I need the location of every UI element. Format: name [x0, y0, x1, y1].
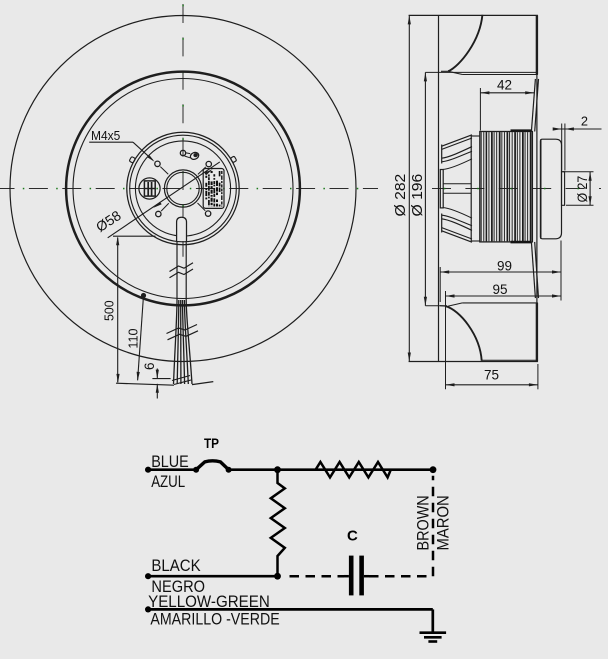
svg-text:2: 2 [581, 114, 588, 129]
svg-text:500: 500 [102, 300, 117, 321]
svg-text:110: 110 [126, 328, 141, 348]
svg-text:C: C [347, 527, 358, 544]
svg-text:99: 99 [497, 258, 512, 273]
svg-text:6: 6 [142, 362, 157, 370]
svg-text:BLACK: BLACK [151, 556, 201, 575]
svg-text:42: 42 [497, 77, 512, 92]
svg-text:MARON: MARON [434, 495, 453, 550]
svg-text:BROWN: BROWN [414, 495, 433, 550]
svg-text:YELLOW-GREEN: YELLOW-GREEN [148, 592, 270, 611]
svg-text:Ø 196: Ø 196 [410, 174, 426, 217]
svg-text:Ø 282: Ø 282 [393, 174, 409, 217]
svg-text:AZUL: AZUL [151, 472, 185, 491]
svg-text:AMARILLO -VERDE: AMARILLO -VERDE [150, 609, 279, 628]
svg-text:Ø 27: Ø 27 [575, 176, 590, 203]
svg-text:75: 75 [484, 367, 499, 382]
svg-text:TP: TP [204, 436, 219, 452]
svg-text:BLUE: BLUE [151, 452, 189, 471]
svg-text:M4x5: M4x5 [91, 128, 120, 143]
svg-text:95: 95 [493, 282, 508, 297]
